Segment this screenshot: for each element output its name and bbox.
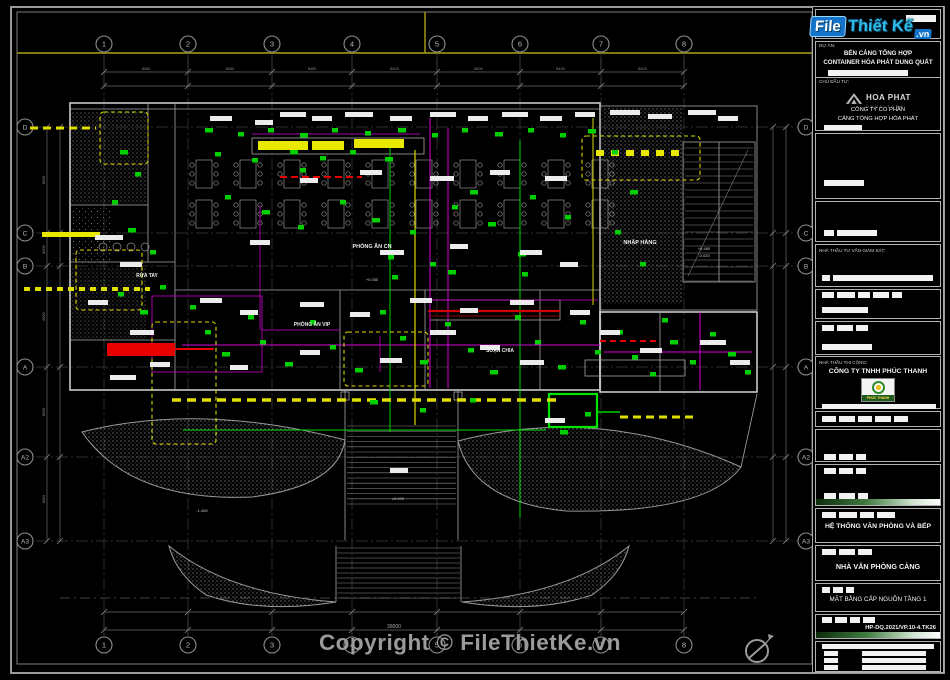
redacted-text (824, 468, 866, 474)
phucthanh-logo: PHÚC THANH (861, 378, 895, 402)
project-label: DỰ ÁN: (819, 43, 835, 48)
svg-text:3: 3 (270, 40, 274, 49)
project-name-line2: CONTAINER HÒA PHÁT DUNG QUẤT (816, 59, 940, 66)
svg-text:C: C (23, 230, 28, 237)
svg-text:8: 8 (682, 40, 686, 49)
redacted-text (822, 275, 933, 281)
supervisor-label: NHÀ THẦU TƯ VẤN GIÁM SÁT: (819, 248, 885, 253)
contractor-name: CÔNG TY TNHH PHÚC THANH (816, 368, 940, 375)
level-mark: -0.020 (698, 253, 710, 258)
svg-text:8400: 8400 (142, 67, 150, 71)
tb-contractor-box: NHÀ THẦU THI CÔNG: CÔNG TY TNHH PHÚC THA… (815, 356, 941, 409)
svg-text:1: 1 (102, 641, 106, 650)
tb-project-box: DỰ ÁN: BẾN CẢNG TỔNG HỢP CONTAINER HÒA P… (815, 41, 941, 81)
svg-text:2: 2 (186, 40, 190, 49)
filethietke-logo[interactable]: File Thiết Kế .vn (809, 9, 945, 43)
svg-text:D: D (23, 124, 28, 131)
svg-text:7: 7 (599, 40, 603, 49)
svg-text:D: D (804, 124, 809, 131)
table-cell (862, 658, 926, 663)
logo-file-badge: File (809, 16, 846, 37)
redacted-text (824, 230, 877, 236)
svg-text:B: B (804, 263, 808, 270)
redacted-text (822, 587, 854, 593)
redacted-text (822, 307, 868, 313)
tb-empty-box-6 (815, 464, 941, 506)
redacted-text (822, 344, 872, 350)
system-title: HỆ THỐNG VĂN PHÒNG VÀ BẾP (816, 523, 940, 530)
redacted-text (822, 292, 902, 298)
tb-building-box: NHÀ VĂN PHÒNG CẢNG (815, 545, 941, 581)
level-mark: -1.450 (196, 508, 208, 513)
project-name-line1: BẾN CẢNG TỔNG HỢP (816, 50, 940, 57)
table-cell (862, 651, 926, 656)
svg-text:6000: 6000 (42, 176, 46, 184)
table-cell (824, 651, 838, 656)
redacted-text (824, 454, 866, 460)
separator-gradient (816, 632, 940, 638)
svg-text:A: A (23, 364, 28, 371)
svg-text:8400: 8400 (474, 67, 482, 71)
redacted-text (822, 404, 936, 409)
tb-empty-box-5 (815, 429, 941, 462)
redacted-text (822, 549, 872, 555)
room-label: SOẠN CHIA (486, 348, 514, 354)
table-cell (824, 665, 838, 670)
room-label: PHÒNG ĂN VIP (294, 320, 331, 328)
tb-empty-box-2 (815, 201, 941, 242)
room-label: PHÒNG ĂN CN (352, 242, 391, 250)
svg-text:A2: A2 (802, 454, 810, 461)
svg-text:A3: A3 (21, 538, 29, 545)
copyright-watermark: Copyright © FileThietKe.vn (250, 630, 690, 656)
phucthanh-emblem-icon (872, 381, 885, 394)
phucthanh-logo-text: PHÚC THANH (862, 395, 894, 401)
tb-system-box: HỆ THỐNG VĂN PHÒNG VÀ BẾP (815, 508, 941, 543)
title-block: DỰ ÁN: BẾN CẢNG TỔNG HỢP CONTAINER HÒA P… (812, 6, 944, 673)
drawing-number: HP-DQ.2021/VP.10-4.TK26 (865, 625, 936, 631)
level-mark: ±0.000 (392, 496, 405, 501)
svg-text:6: 6 (518, 40, 522, 49)
svg-text:2: 2 (186, 641, 190, 650)
owner-line1: CÔNG TY CỔ PHẦN (816, 107, 940, 113)
tb-empty-box-3 (815, 289, 941, 319)
svg-text:6000: 6000 (42, 408, 46, 416)
floor-plan-canvas: 1122334455667788DDCCBBAAA2A2A3A3 8400840… (0, 0, 950, 680)
redacted-text (824, 180, 864, 186)
owner-label: CHỦ ĐẦU TƯ: (819, 79, 849, 84)
separator-gradient (816, 499, 940, 505)
logo-vn-badge: .vn (914, 29, 932, 39)
drawing-title: MẶT BẰNG CẤP NGUỒN TẦNG 1 (816, 596, 940, 603)
north-arrow-icon (746, 634, 774, 662)
room-label: RỬA TAY (136, 272, 158, 279)
svg-text:C: C (804, 230, 809, 237)
tb-empty-box-4 (815, 321, 941, 355)
svg-text:6000: 6000 (42, 245, 46, 253)
tb-revision-table (815, 641, 941, 672)
svg-text:8400: 8400 (226, 67, 234, 71)
svg-text:6000: 6000 (42, 312, 46, 320)
building-title: NHÀ VĂN PHÒNG CẢNG (816, 562, 940, 571)
level-mark: +0.050 (366, 277, 379, 282)
svg-text:4: 4 (350, 40, 354, 49)
contractor-label: NHÀ THẦU THI CÔNG: (819, 360, 867, 365)
svg-text:1: 1 (102, 40, 106, 49)
tb-dash-strip (815, 411, 941, 427)
cad-sheet: 1122334455667788DDCCBBAAA2A2A3A3 8400840… (0, 0, 950, 680)
svg-text:8400: 8400 (638, 67, 646, 71)
redacted-text (822, 644, 934, 649)
svg-text:A2: A2 (21, 454, 29, 461)
hoaphat-triangle-icon (845, 92, 863, 105)
tb-drawing-box: MẶT BẰNG CẤP NGUỒN TẦNG 1 (815, 583, 941, 612)
level-mark: +0.480 (698, 246, 711, 251)
tb-supervisor-box: NHÀ THẦU TƯ VẤN GIÁM SÁT: (815, 244, 941, 287)
svg-text:A: A (804, 364, 809, 371)
svg-text:8400: 8400 (556, 67, 564, 71)
svg-text:5: 5 (435, 40, 439, 49)
redacted-text (822, 325, 868, 331)
redacted-text (828, 70, 908, 76)
tb-empty-box-1 (815, 133, 941, 199)
redacted-text (822, 512, 895, 518)
svg-text:B: B (23, 263, 27, 270)
redacted-text (822, 617, 875, 623)
svg-text:A3: A3 (802, 538, 810, 545)
svg-text:8400: 8400 (390, 67, 398, 71)
hoaphat-logo: HOA PHAT GANG THÉP (816, 87, 940, 109)
tb-owner-box: CHỦ ĐẦU TƯ: HOA PHAT GANG THÉP CÔNG TY C… (815, 77, 941, 131)
svg-text:8400: 8400 (308, 67, 316, 71)
logo-thietke-text: Thiết Kế (847, 17, 913, 36)
redacted-text (824, 125, 862, 130)
table-cell (862, 665, 926, 670)
hoaphat-name: HOA PHAT (866, 93, 911, 102)
owner-line2: CẢNG TỔNG HỢP HÒA PHÁT (816, 116, 940, 122)
tb-number-box: HP-DQ.2021/VP.10-4.TK26 (815, 614, 941, 639)
redacted-text (822, 416, 908, 422)
table-cell (824, 658, 838, 663)
svg-text:6000: 6000 (42, 495, 46, 503)
room-label: NHẬP HÀNG (623, 239, 656, 246)
